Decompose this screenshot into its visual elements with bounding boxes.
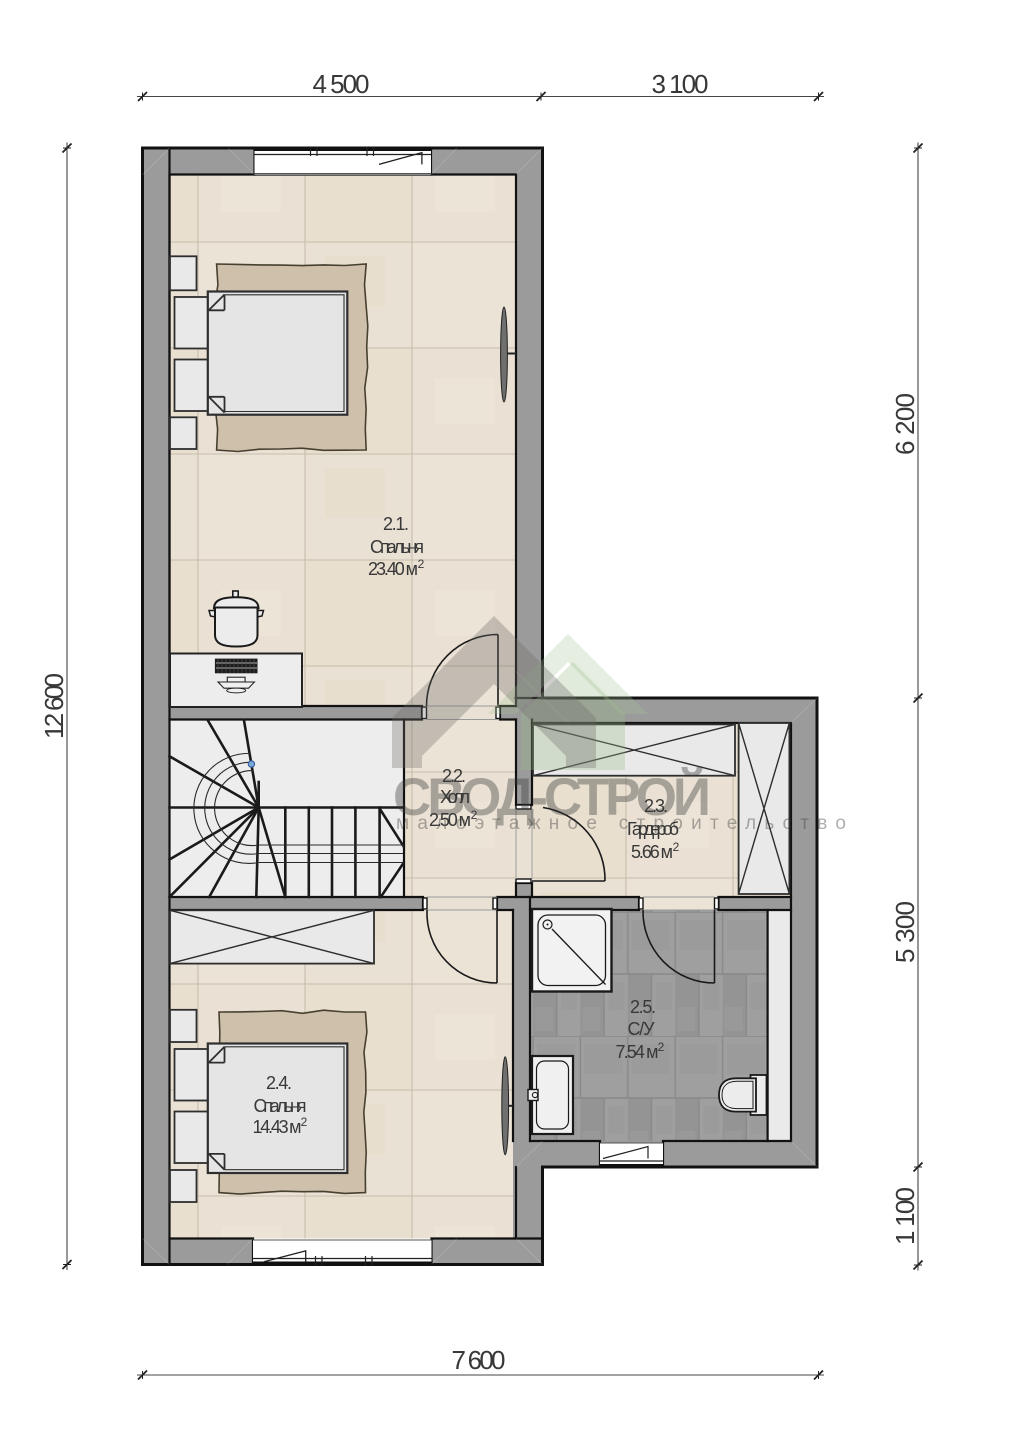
svg-text:2.5.: 2.5. — [630, 997, 656, 1017]
svg-text:6 200: 6 200 — [890, 393, 920, 455]
svg-text:2: 2 — [658, 1040, 665, 1054]
svg-text:7 600: 7 600 — [452, 1345, 506, 1375]
svg-text:2.3.: 2.3. — [644, 796, 668, 816]
svg-text:2.50 м: 2.50 м — [429, 810, 471, 830]
svg-text:2: 2 — [301, 1115, 308, 1129]
svg-text:2: 2 — [418, 557, 425, 571]
svg-text:2: 2 — [673, 840, 680, 854]
svg-text:Гардероб: Гардероб — [627, 819, 679, 839]
svg-text:23.40 м: 23.40 м — [368, 559, 418, 579]
svg-text:Спальня: Спальня — [370, 537, 424, 557]
svg-text:2: 2 — [471, 808, 478, 822]
svg-text:5.66 м: 5.66 м — [631, 842, 673, 862]
svg-text:Холл: Холл — [440, 787, 470, 807]
svg-text:7.54 м: 7.54 м — [616, 1042, 659, 1062]
svg-text:14.43 м: 14.43 м — [253, 1117, 302, 1137]
svg-text:2.1.: 2.1. — [383, 514, 409, 534]
svg-text:5 300: 5 300 — [890, 901, 920, 963]
svg-text:Спальня: Спальня — [254, 1096, 307, 1116]
svg-text:2.4.: 2.4. — [266, 1073, 292, 1093]
svg-text:1 100: 1 100 — [890, 1187, 920, 1245]
svg-text:12 600: 12 600 — [39, 673, 69, 739]
svg-text:2.2.: 2.2. — [442, 766, 466, 786]
svg-text:С/У: С/У — [628, 1019, 656, 1039]
svg-text:4 500: 4 500 — [313, 69, 370, 99]
svg-text:3 100: 3 100 — [652, 69, 709, 99]
